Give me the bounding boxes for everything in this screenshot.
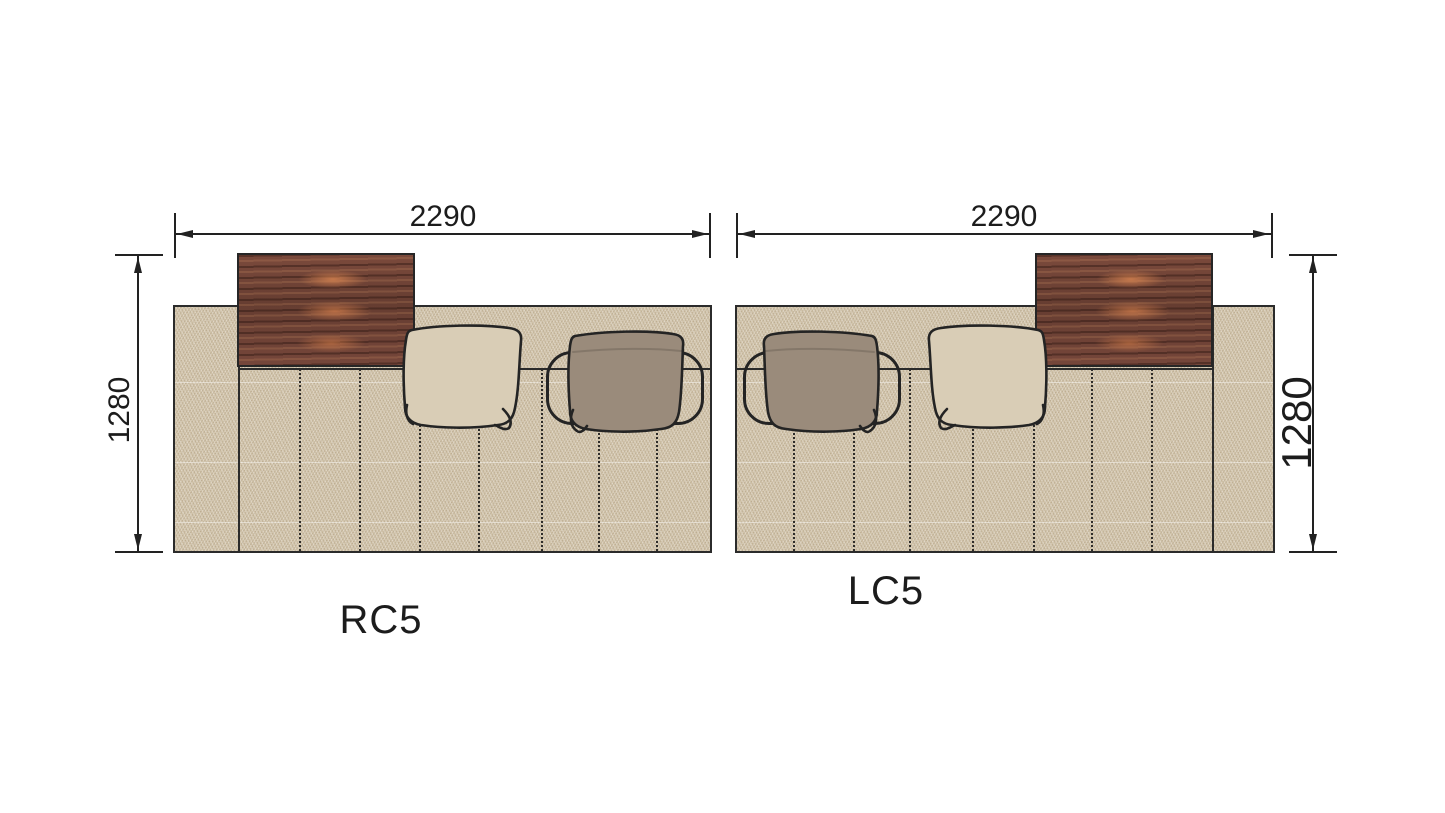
dim-extension-tick	[736, 213, 738, 258]
rc5-seat-cushion-beige	[395, 321, 530, 443]
dim-arrow-left-icon	[739, 230, 755, 238]
lc5-back-cushion-taupe	[756, 326, 888, 446]
rc5-stitch-line	[359, 369, 361, 551]
lc5-label: LC5	[826, 569, 946, 613]
rc5-depth-value: 1280	[104, 350, 136, 470]
rc5-back-cushion-taupe	[559, 326, 691, 446]
dim-arrow-right-icon	[692, 230, 708, 238]
rc5-width-value: 2290	[373, 201, 513, 233]
dim-arrow-left-icon	[177, 230, 193, 238]
dim-extension-tick	[115, 254, 163, 256]
furniture-plan-drawing: RC5 LC5	[0, 0, 1445, 813]
dim-arrow-up-icon	[1309, 257, 1317, 273]
lc5-fabric-seam	[737, 462, 1273, 463]
lc5-fabric-seam	[737, 522, 1273, 523]
lc5-wood-tabletop	[1035, 253, 1213, 367]
lc5-seat-cushion-beige	[920, 321, 1055, 443]
rc5-wood-tabletop	[237, 253, 415, 367]
lc5-width-value: 2290	[934, 201, 1074, 233]
dim-arrow-right-icon	[1253, 230, 1269, 238]
dim-extension-tick	[709, 213, 711, 258]
dim-extension-tick	[174, 213, 176, 258]
dim-arrow-up-icon	[134, 257, 142, 273]
lc5-stitch-line	[909, 369, 911, 551]
lc5-depth-value: 1280	[1274, 353, 1320, 493]
rc5-fabric-seam	[175, 462, 710, 463]
dim-arrow-down-icon	[134, 534, 142, 550]
rc5-fabric-seam	[175, 522, 710, 523]
dim-extension-tick	[115, 551, 163, 553]
dim-arrow-down-icon	[1309, 534, 1317, 550]
dim-extension-tick	[1271, 213, 1273, 258]
dim-line	[137, 255, 139, 552]
dim-line	[175, 233, 710, 235]
lc5-stitch-line	[1091, 369, 1093, 551]
rc5-label: RC5	[321, 598, 441, 642]
rc5-stitch-line	[299, 369, 301, 551]
lc5-stitch-line	[1151, 369, 1153, 551]
dim-line	[737, 233, 1271, 235]
rc5-stitch-line	[541, 369, 543, 551]
